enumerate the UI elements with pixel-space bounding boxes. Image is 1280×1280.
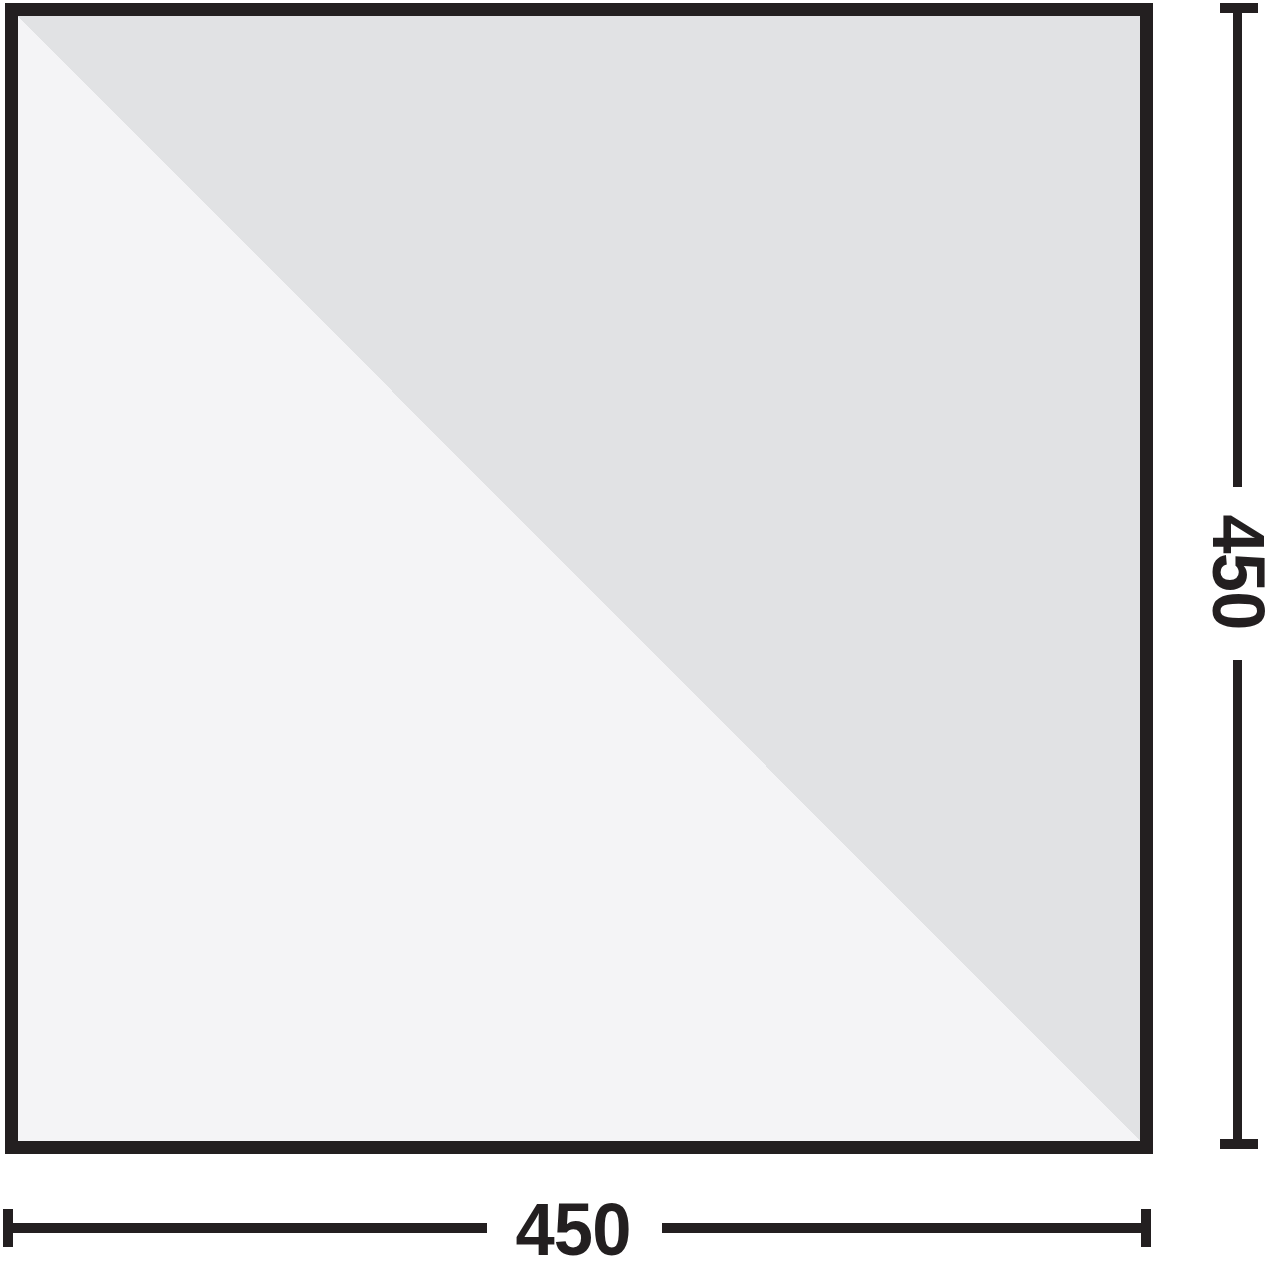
width-dimension-line-right xyxy=(662,1223,1150,1233)
panel-square xyxy=(5,3,1153,1154)
dimension-diagram: 450 450 xyxy=(0,0,1280,1280)
height-dimension-label: 450 xyxy=(1201,515,1276,630)
width-dimension-line-left xyxy=(3,1223,487,1233)
width-dimension-tick-right xyxy=(1141,1209,1151,1247)
height-dimension-tick-bottom xyxy=(1220,1139,1258,1149)
width-dimension-label: 450 xyxy=(516,1192,631,1267)
panel-diagonal-fill xyxy=(18,16,1140,1141)
height-dimension-line-lower xyxy=(1233,660,1242,1149)
height-dimension-line-upper xyxy=(1233,3,1242,487)
